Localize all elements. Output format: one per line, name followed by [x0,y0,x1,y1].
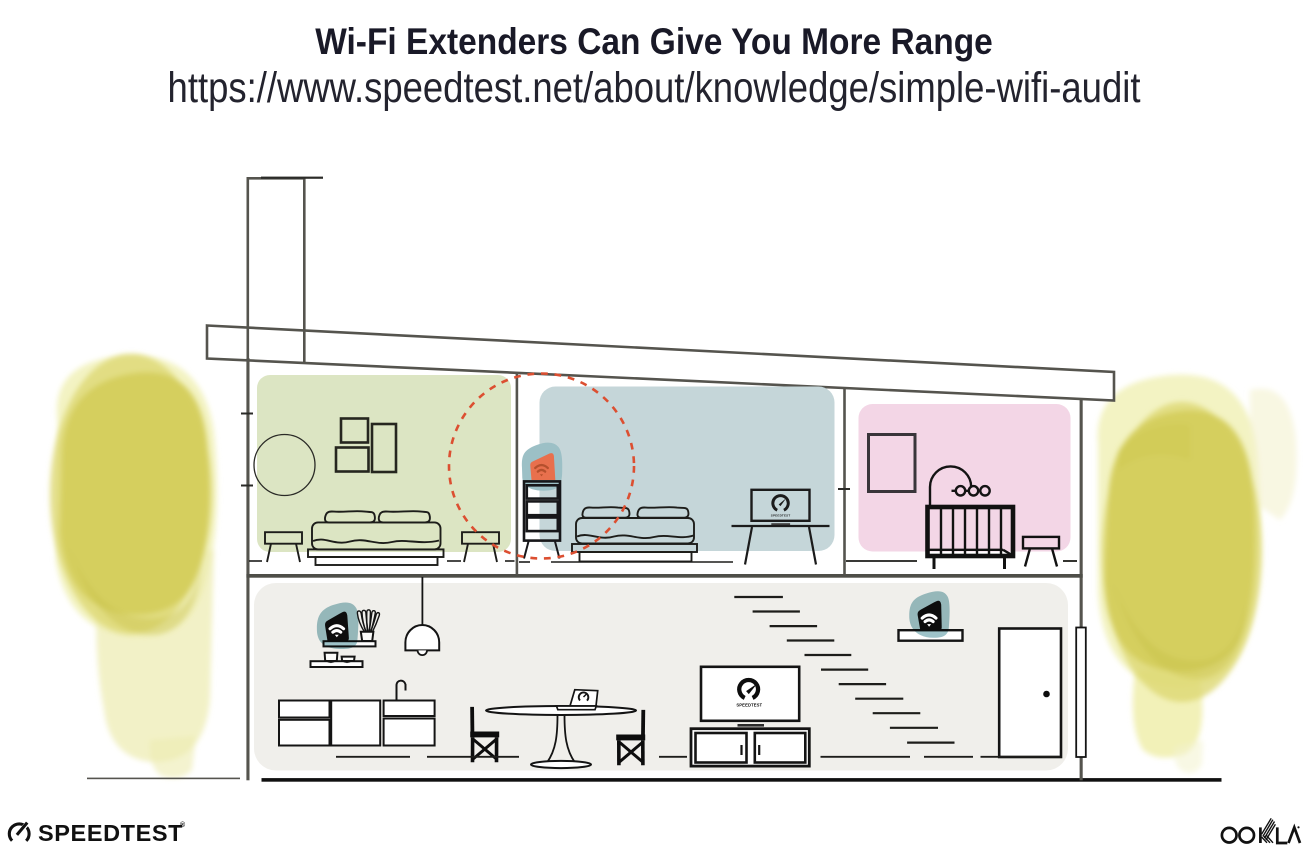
svg-text:SPEEDTEST: SPEEDTEST [771,514,791,518]
svg-text:SPEEDTEST: SPEEDTEST [736,703,762,708]
svg-text:SPEEDTEST: SPEEDTEST [38,820,183,846]
svg-text:®: ® [180,821,186,829]
